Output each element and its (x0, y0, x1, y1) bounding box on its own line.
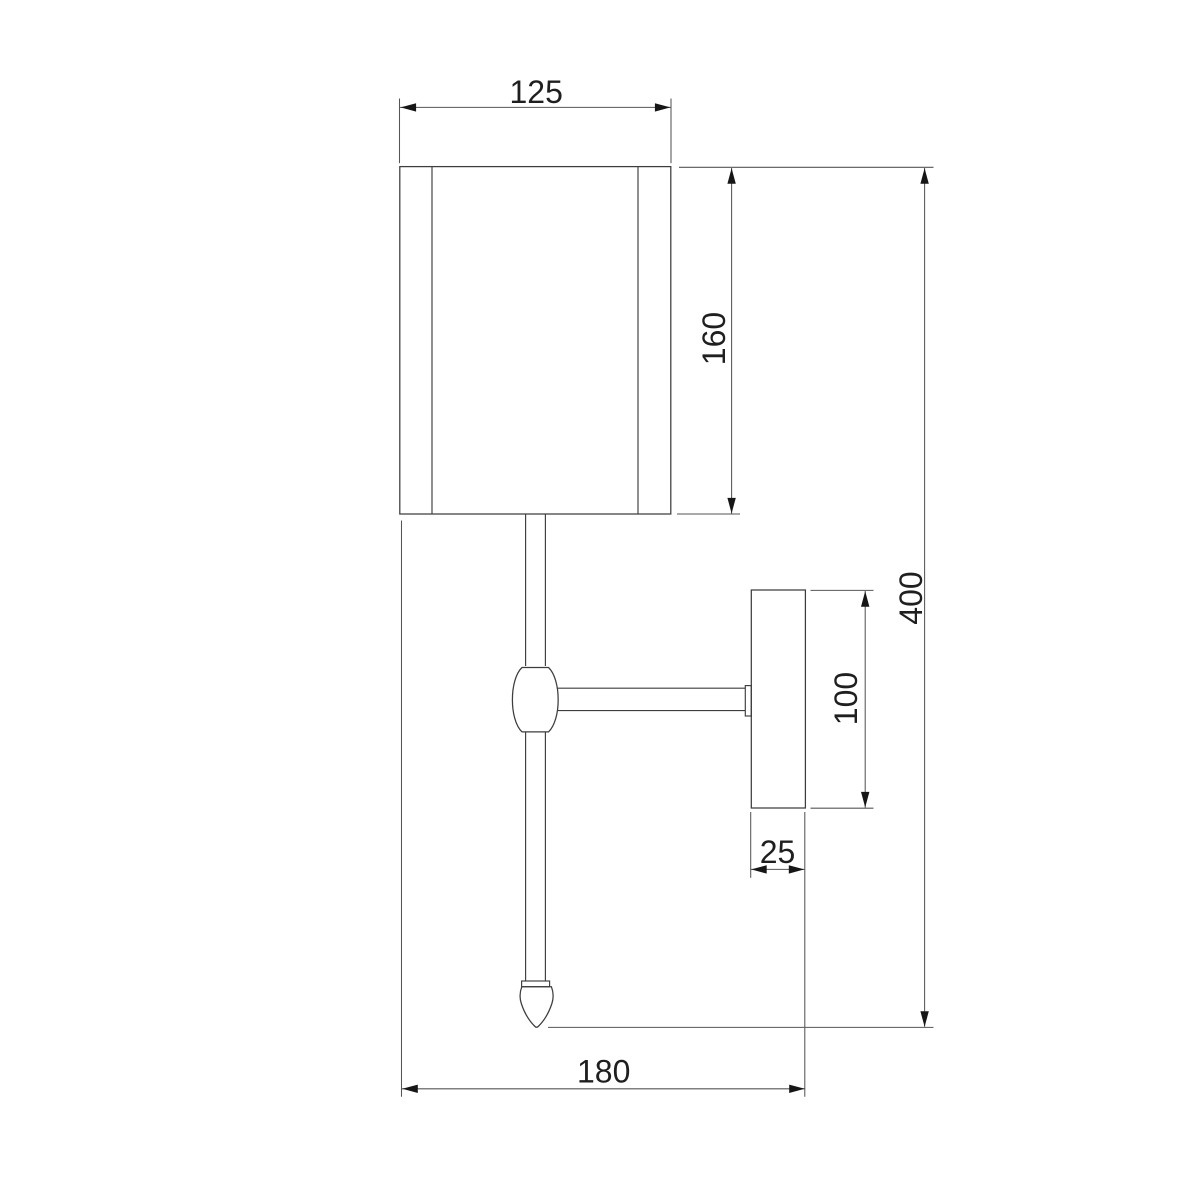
svg-text:160: 160 (696, 312, 732, 365)
svg-text:125: 125 (510, 74, 563, 110)
svg-text:100: 100 (828, 672, 864, 725)
svg-text:400: 400 (893, 571, 929, 624)
svg-text:180: 180 (577, 1054, 630, 1090)
svg-text:25: 25 (760, 834, 796, 870)
